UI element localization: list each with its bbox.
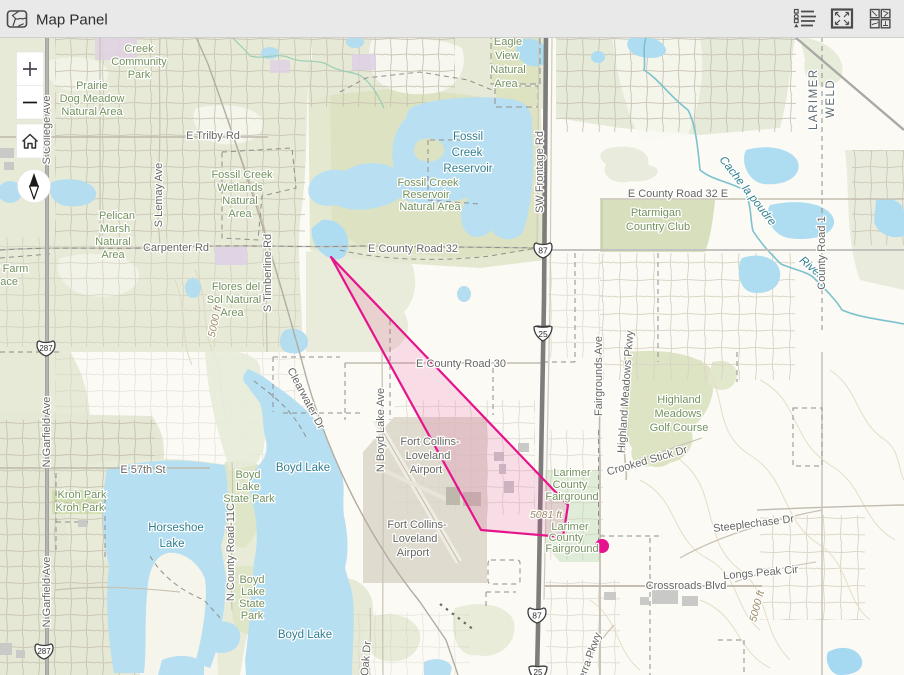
svg-text:Highland: Highland [657,394,700,406]
svg-text:Fairground: Fairground [545,543,598,555]
svg-text:WELD: WELD [825,79,837,118]
svg-text:w Farm: w Farm [0,263,28,275]
svg-text:Meadows: Meadows [654,408,702,420]
svg-text:Sol Natural: Sol Natural [207,294,261,306]
svg-text:Prairie: Prairie [76,80,108,92]
svg-text:S Timberline Rd: S Timberline Rd [262,234,274,312]
svg-text:pace: pace [0,276,18,288]
svg-text:Pelican: Pelican [99,210,135,222]
svg-text:Reservoir: Reservoir [443,163,492,175]
svg-text:E County Road 32: E County Road 32 [368,243,458,255]
svg-text:Area: Area [228,208,252,220]
svg-text:Fairgrounds Ave: Fairgrounds Ave [593,336,605,416]
svg-text:LARIMER: LARIMER [808,68,820,130]
svg-text:5081 ft: 5081 ft [530,509,563,521]
svg-text:N Garfield Ave: N Garfield Ave [41,397,53,468]
svg-text:Fossil: Fossil [453,131,483,143]
svg-text:Lake: Lake [241,586,265,598]
svg-text:Flores del: Flores del [212,281,260,293]
svg-text:25: 25 [534,668,543,675]
svg-text:Wetlands: Wetlands [217,182,263,194]
svg-text:Fossil Creek: Fossil Creek [211,169,273,181]
svg-text:Creek: Creek [124,43,154,55]
svg-text:Natural: Natural [95,236,130,248]
svg-text:Natural Area: Natural Area [399,201,461,213]
svg-text:Crossroads Blvd: Crossroads Blvd [646,580,727,592]
svg-text:E 57th St: E 57th St [120,464,165,476]
svg-text:N County Road-11C: N County Road-11C [225,503,237,601]
svg-text:Creek: Creek [452,147,483,159]
svg-text:Airport: Airport [397,547,429,559]
svg-text:Horseshoe: Horseshoe [148,522,204,534]
svg-text:Larimer: Larimer [553,467,591,479]
svg-text:Natural: Natural [490,64,525,76]
svg-text:Boyd Lake: Boyd Lake [278,629,332,641]
svg-text:Boyd: Boyd [239,574,264,586]
svg-text:87: 87 [532,611,542,621]
svg-text:287: 287 [37,647,51,656]
svg-text:Fossil Creek: Fossil Creek [397,177,459,189]
svg-text:Community: Community [111,56,167,68]
svg-text:Fort Collins-: Fort Collins- [400,436,460,448]
svg-text:Area: Area [220,307,244,319]
svg-text:Golf Course: Golf Course [650,422,709,434]
svg-text:Ptarmigan: Ptarmigan [631,207,681,219]
svg-text:Lake: Lake [236,481,260,493]
svg-text:87: 87 [538,246,548,256]
svg-text:Park: Park [241,610,264,622]
svg-text:Natural Area: Natural Area [61,106,123,118]
svg-text:Map Panel: Map Panel [36,12,108,29]
svg-text:Area: Area [494,78,518,90]
svg-text:N Garfield Ave: N Garfield Ave [41,557,53,628]
svg-text:S Lemay Ave: S Lemay Ave [153,163,165,228]
svg-text:Carpenter Rd: Carpenter Rd [143,242,209,254]
svg-text:View: View [495,50,519,62]
svg-text:287: 287 [39,344,53,353]
svg-text:Kroh Park: Kroh Park [58,489,107,501]
svg-text:Reservoir: Reservoir [402,189,449,201]
svg-text:Natural: Natural [222,195,257,207]
svg-text:SW Frontage Rd: SW Frontage Rd [534,131,546,213]
svg-text:N Boyd Lake Ave: N Boyd Lake Ave [375,388,387,472]
svg-text:Fairground: Fairground [545,491,598,503]
svg-text:Dog Meadow: Dog Meadow [60,93,125,105]
svg-text:County: County [553,479,588,491]
svg-text:Loveland: Loveland [406,450,451,462]
svg-text:Airport: Airport [410,464,442,476]
svg-text:Park: Park [128,69,151,81]
svg-text:State: State [239,598,265,610]
svg-text:E County Road 30: E County Road 30 [416,358,506,370]
svg-text:Country Club: Country Club [626,221,690,233]
svg-text:Marsh: Marsh [100,223,131,235]
svg-text:Area: Area [101,249,125,261]
svg-text:Boyd: Boyd [235,469,260,481]
svg-text:Fort Collins-: Fort Collins- [387,519,447,531]
svg-text:E Trilby Rd: E Trilby Rd [186,130,240,142]
svg-text:County Road 1: County Road 1 [816,216,828,289]
svg-text:Boyd Lake: Boyd Lake [276,462,330,474]
svg-text:Kroh Park: Kroh Park [56,502,105,514]
svg-text:Loveland: Loveland [393,533,438,545]
svg-text:25: 25 [538,329,548,339]
svg-text:Lake: Lake [160,538,185,550]
svg-text:E County Road 32 E: E County Road 32 E [628,188,728,200]
